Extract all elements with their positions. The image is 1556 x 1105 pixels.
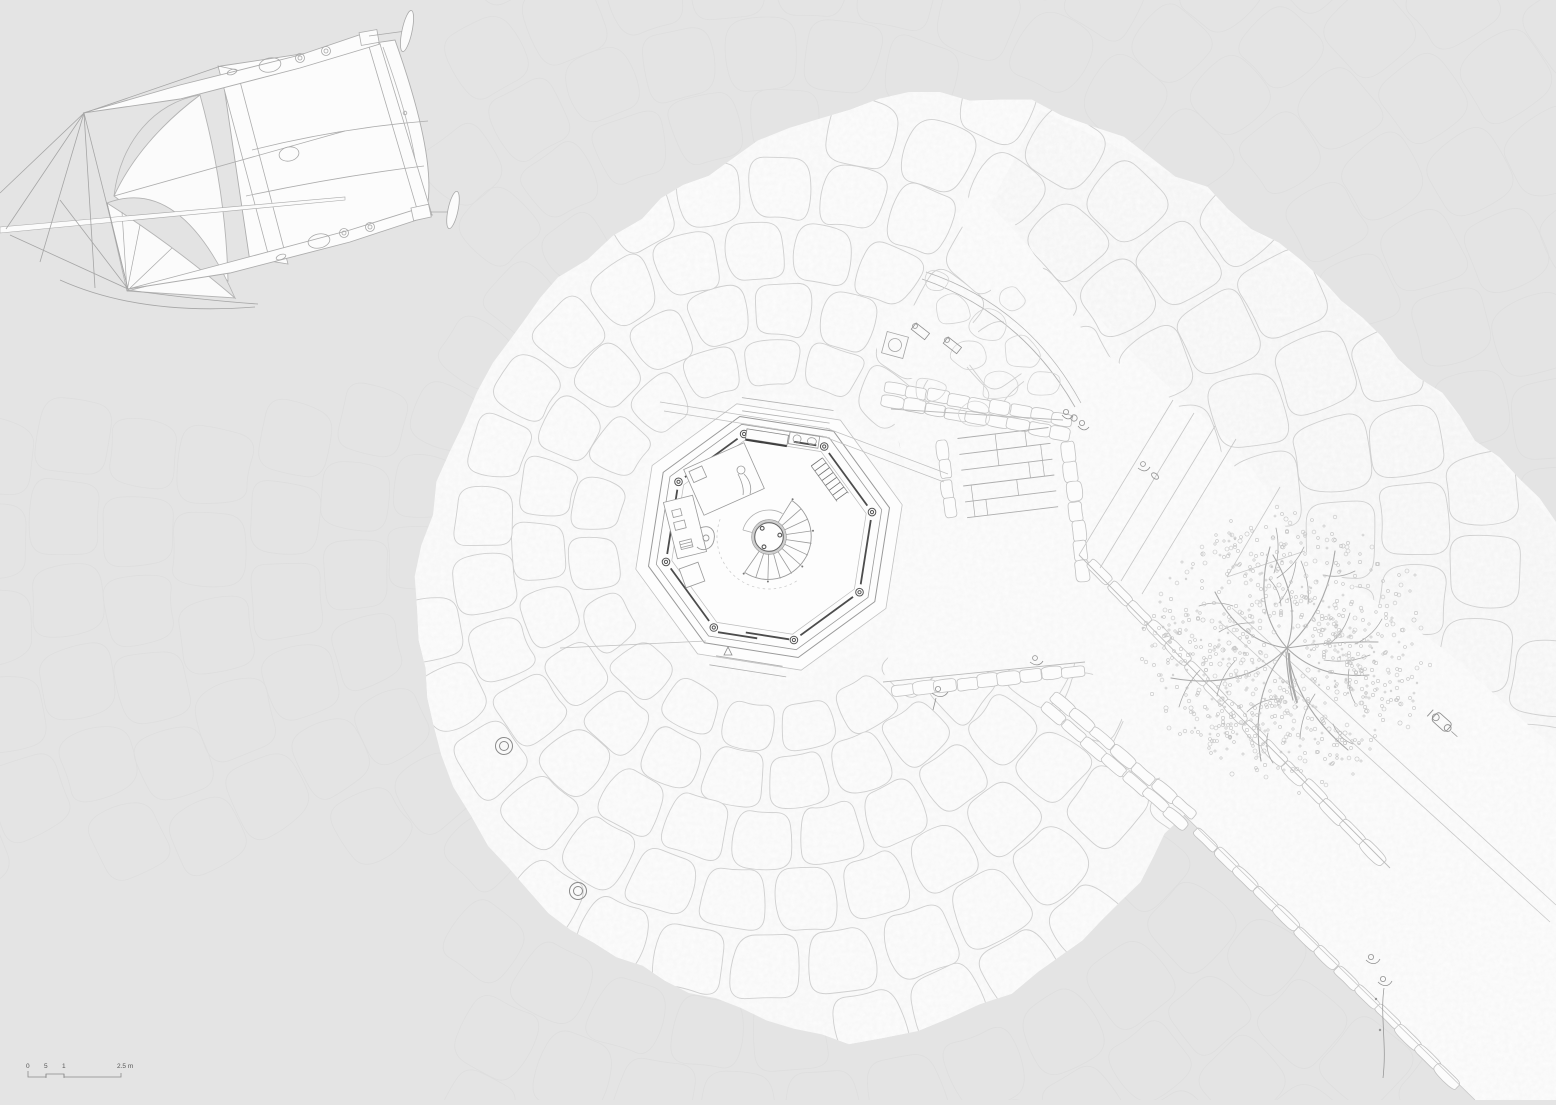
svg-text:2.5 m: 2.5 m [117,1063,133,1070]
svg-text:0: 0 [26,1063,30,1070]
svg-text:5: 5 [44,1063,48,1070]
svg-text:1: 1 [62,1063,66,1070]
